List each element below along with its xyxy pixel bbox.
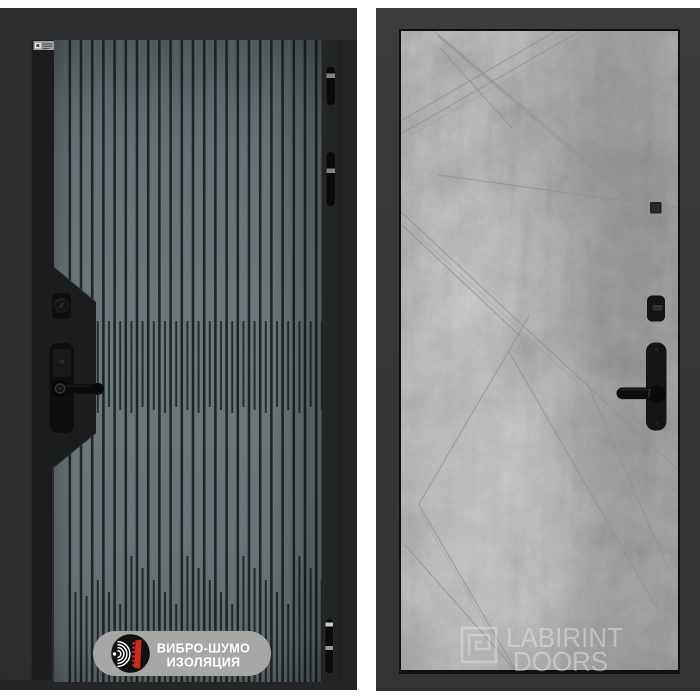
- svg-text:ВИБРО-ШУМО: ВИБРО-ШУМО: [157, 642, 250, 656]
- svg-text:ИЗОЛЯЦИЯ: ИЗОЛЯЦИЯ: [167, 656, 241, 670]
- svg-text:DOORS: DOORS: [513, 646, 608, 677]
